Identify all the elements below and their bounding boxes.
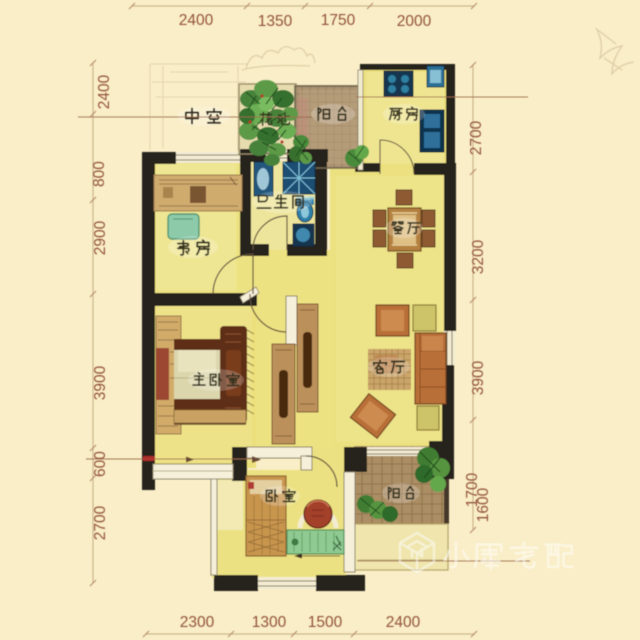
svg-text:2000: 2000 [397,13,432,30]
svg-text:2700: 2700 [92,505,109,540]
svg-text:3900: 3900 [92,365,109,400]
svg-text:3200: 3200 [470,239,487,274]
svg-text:1300: 1300 [252,614,287,631]
svg-text:1500: 1500 [308,614,343,631]
svg-text:1350: 1350 [258,13,293,30]
svg-text:2400: 2400 [96,74,113,109]
svg-text:1750: 1750 [321,12,356,29]
svg-text:2700: 2700 [468,120,485,155]
svg-text:1600: 1600 [475,487,492,522]
svg-text:800: 800 [91,161,108,187]
svg-text:2300: 2300 [180,614,215,631]
svg-text:2900: 2900 [92,220,109,255]
svg-text:600: 600 [92,451,109,477]
svg-text:2400: 2400 [179,12,214,29]
svg-text:3900: 3900 [470,360,487,395]
svg-text:2400: 2400 [386,614,421,631]
